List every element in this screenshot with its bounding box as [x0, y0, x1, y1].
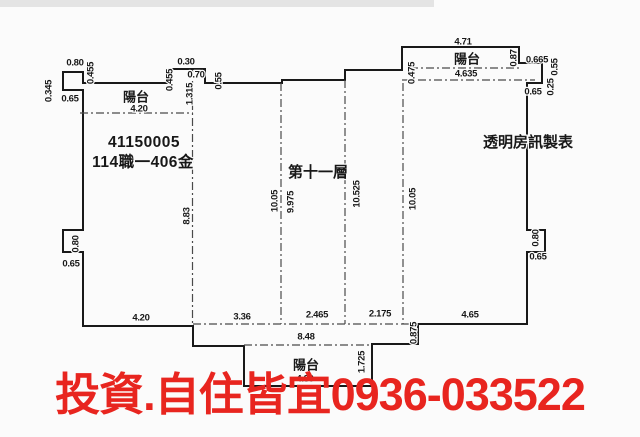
dim-interior-mid-right-height: 10.525 — [352, 179, 363, 207]
dim-top-right-step-c: 0.55 — [550, 57, 561, 75]
dim-interior-mid-left-height: 10.05 — [270, 189, 281, 212]
dim-top-notch-depth: 1.315 — [185, 82, 196, 105]
floor-title: 第十一層 — [288, 163, 348, 181]
dim-bottom-right-width: 4.65 — [461, 310, 479, 321]
dim-balcony-top-right-inner: 4.635 — [455, 69, 478, 80]
dim-left-bump-width: 0.80 — [71, 235, 82, 252]
dim-right-bump-offset: 0.65 — [529, 252, 547, 263]
balcony-label-top-left: 陽台 — [123, 89, 149, 104]
maker-credit: 透明房訊製表 — [483, 133, 574, 151]
floor-plan-page: 0.800.3450.650.455陽台4.200.300.4550.701.3… — [0, 0, 640, 437]
dim-top-notch-a: 0.30 — [177, 57, 194, 68]
dim-top-notch-drop: 0.55 — [214, 71, 225, 89]
dim-interior-right-height: 10.05 — [408, 187, 419, 210]
registry-number: 41150005 — [108, 134, 180, 151]
dim-top-right-step-a: 0.87 — [509, 49, 520, 66]
dim-bottom-span-c: 2.175 — [369, 309, 392, 320]
dim-top-notch-rise: 0.455 — [165, 68, 176, 91]
dim-balcony-top-right-side: 0.475 — [407, 61, 418, 84]
dim-bottom-span-b: 2.465 — [306, 310, 329, 321]
dim-balcony-top-right-outer: 4.71 — [454, 37, 472, 48]
dim-top-left-bump-offset: 0.65 — [61, 94, 79, 105]
dim-top-left-wall: 0.455 — [86, 61, 97, 84]
dim-left-bump-offset: 0.65 — [62, 259, 80, 270]
dim-balcony-top-left-width: 4.20 — [130, 104, 147, 115]
interior-dashed-lines — [80, 68, 535, 345]
dim-bottom-step-height: 0.875 — [409, 321, 420, 344]
dim-interior-left-height: 8.83 — [182, 207, 193, 224]
dim-bottom-total-width: 8.48 — [297, 332, 314, 343]
balcony-label-top-right: 陽台 — [454, 51, 480, 66]
ad-text-overlay: 投資.自住皆宜0936-033522 — [0, 371, 640, 420]
dim-right-bump-width: 0.80 — [531, 229, 542, 246]
parcel-code: 114職一406金 — [92, 152, 194, 171]
dim-bottom-span-a: 3.36 — [233, 312, 250, 323]
dim-top-notch-b: 0.70 — [187, 70, 204, 81]
dim-top-left-bump-width: 0.80 — [66, 58, 83, 69]
dim-top-right-step-b: 0.665 — [526, 55, 549, 66]
dimension-labels: 0.800.3450.650.455陽台4.200.300.4550.701.3… — [44, 37, 574, 385]
dim-interior-mid-left-inner: 9.975 — [286, 190, 297, 213]
dim-top-left-bump-height: 0.345 — [44, 79, 55, 102]
dim-top-right-step-d: 0.25 — [546, 77, 557, 95]
dim-top-right-step-e: 0.65 — [524, 87, 542, 98]
dim-bottom-left-width: 4.20 — [132, 313, 149, 324]
